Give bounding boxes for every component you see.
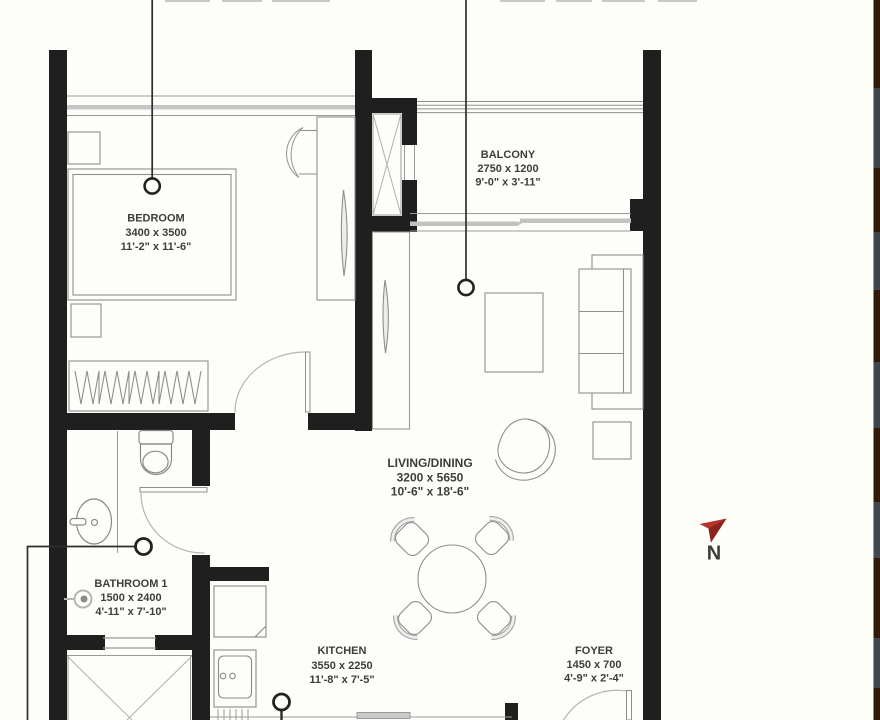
svg-text:9'-0" x 3'-11": 9'-0" x 3'-11"	[475, 177, 540, 189]
svg-text:1450 x 700: 1450 x 700	[566, 659, 621, 671]
svg-text:KITCHEN: KITCHEN	[318, 645, 367, 657]
svg-text:2750 x 1200: 2750 x 1200	[477, 163, 538, 175]
svg-text:BALCONY: BALCONY	[481, 149, 536, 161]
svg-text:3200 x 5650: 3200 x 5650	[397, 471, 464, 485]
svg-text:LIVING/DINING: LIVING/DINING	[387, 456, 472, 470]
svg-text:BEDROOM: BEDROOM	[127, 213, 184, 225]
svg-text:1500 x 2400: 1500 x 2400	[100, 592, 161, 604]
svg-text:11'-8" x 7'-5": 11'-8" x 7'-5"	[309, 674, 374, 686]
svg-text:10'-6" x 18'-6": 10'-6" x 18'-6"	[391, 485, 469, 499]
svg-text:BATHROOM 1: BATHROOM 1	[94, 578, 167, 590]
svg-text:3400 x 3500: 3400 x 3500	[125, 227, 186, 239]
svg-text:11'-2" x 11'-6": 11'-2" x 11'-6"	[121, 241, 192, 253]
svg-text:4'-11" x 7'-10": 4'-11" x 7'-10"	[95, 606, 166, 618]
svg-text:4'-9" x 2'-4": 4'-9" x 2'-4"	[564, 673, 624, 685]
svg-text:3550 x 2250: 3550 x 2250	[311, 660, 372, 672]
svg-text:FOYER: FOYER	[575, 645, 613, 657]
svg-text:N: N	[707, 543, 721, 565]
